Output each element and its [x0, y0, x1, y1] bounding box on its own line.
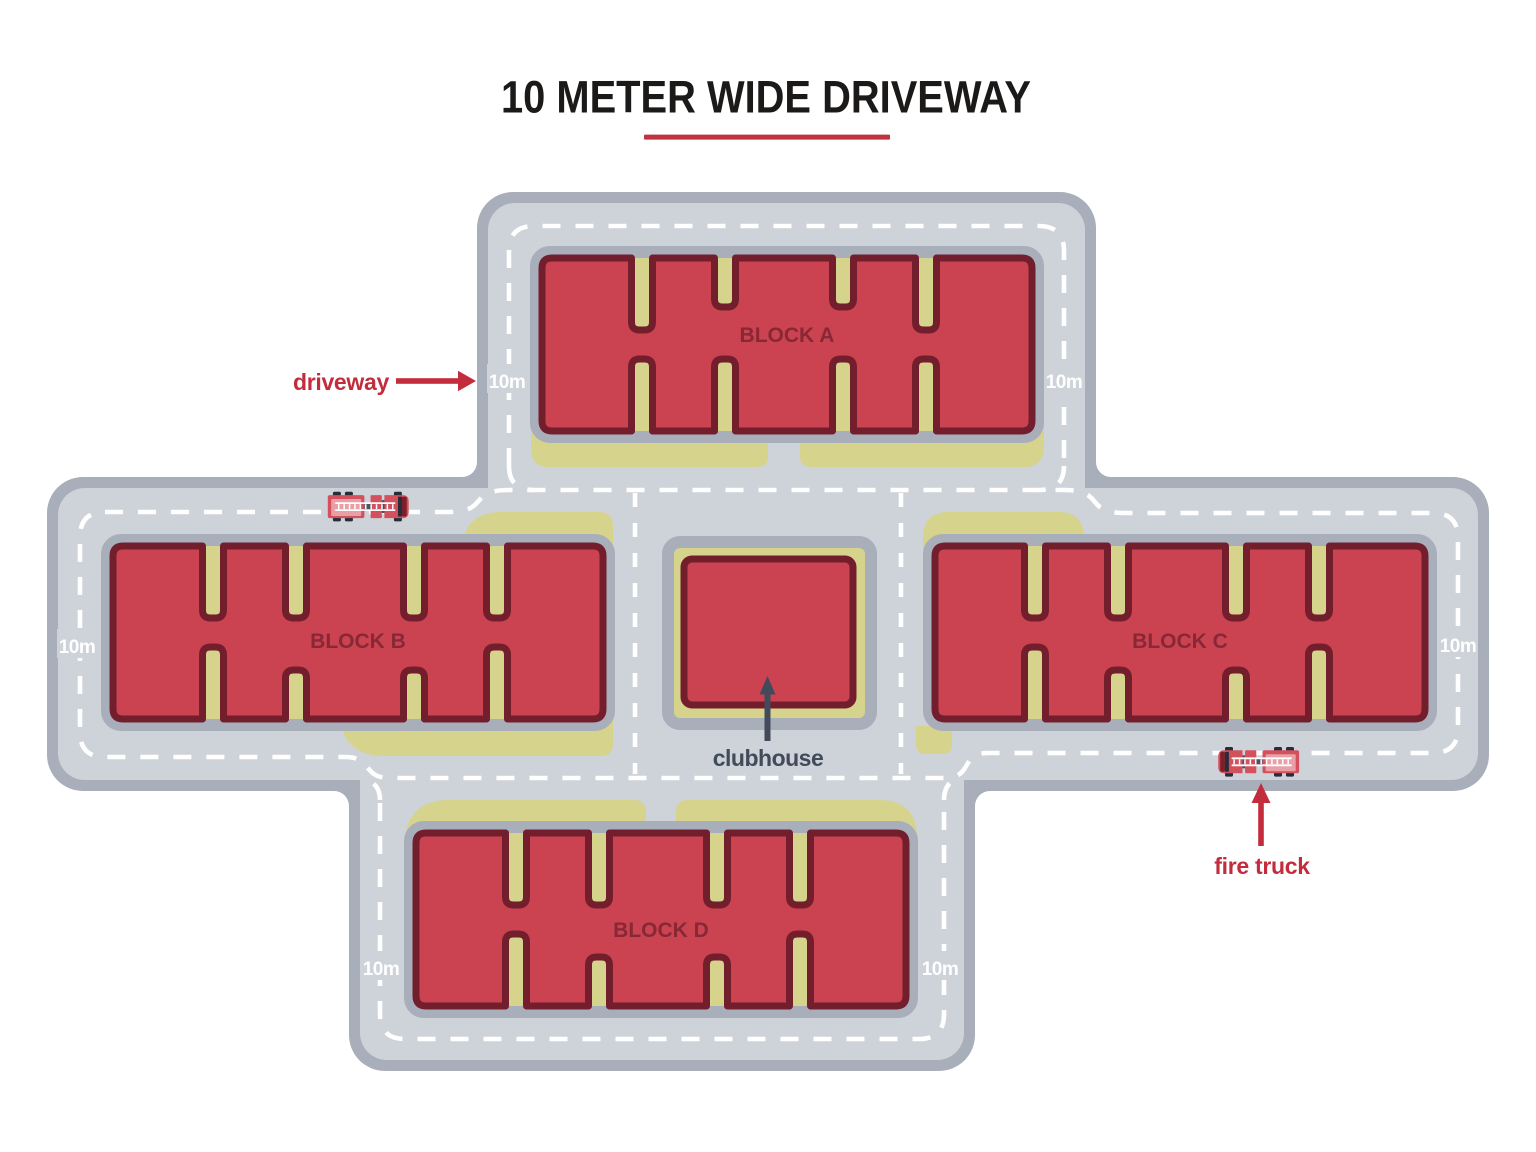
svg-text:10m: 10m — [1440, 636, 1477, 657]
svg-text:clubhouse: clubhouse — [713, 745, 824, 771]
svg-text:10 METER WIDE DRIVEWAY: 10 METER WIDE DRIVEWAY — [501, 72, 1031, 123]
svg-text:10m: 10m — [59, 637, 96, 658]
svg-text:BLOCK A: BLOCK A — [740, 324, 835, 347]
svg-text:BLOCK D: BLOCK D — [613, 919, 709, 942]
svg-text:BLOCK B: BLOCK B — [310, 630, 406, 653]
svg-text:BLOCK C: BLOCK C — [1132, 630, 1228, 653]
svg-text:fire truck: fire truck — [1214, 853, 1310, 879]
svg-text:driveway: driveway — [293, 369, 390, 395]
svg-text:10m: 10m — [1046, 372, 1083, 393]
svg-text:10m: 10m — [363, 959, 400, 980]
svg-text:10m: 10m — [922, 959, 959, 980]
svg-text:10m: 10m — [489, 372, 526, 393]
